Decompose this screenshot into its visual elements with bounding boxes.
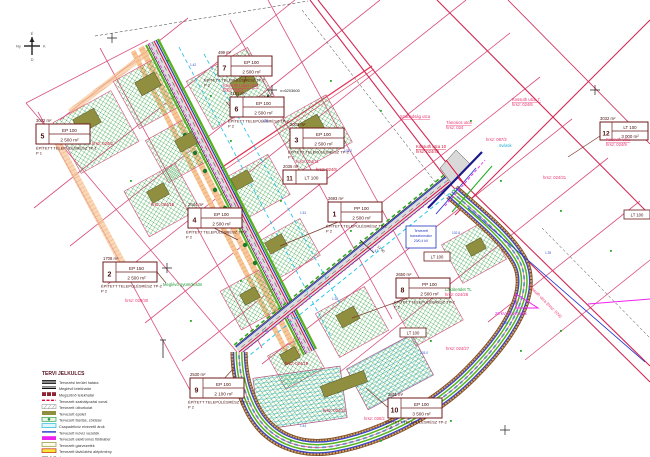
svg-text:EP 100: EP 100 <box>244 60 259 65</box>
ditch-label: övárok <box>499 143 512 148</box>
svg-text:103.0: 103.0 <box>420 351 428 355</box>
pavement-swatch-icon <box>42 405 56 409</box>
zone-box-2: 1708 m² 2 EP 150 2 500 m² ÉPÍTETT TELEPÜ… <box>101 256 163 294</box>
legend-item-pavement: Tervezett útburkolat <box>42 405 93 410</box>
svg-text:1.35: 1.35 <box>332 297 338 301</box>
hrsz-label: hrsz: 024/19 <box>285 361 309 366</box>
hrsz-label: hrsz: 024/31 <box>543 175 567 180</box>
svg-text:1708 m²: 1708 m² <box>103 256 119 261</box>
hrsz-label: hrsz: 024/15 <box>151 202 175 207</box>
svg-text:Tervezett szabályozási vonal: Tervezett szabályozási vonal <box>59 400 107 404</box>
svg-text:Tervezett: Tervezett <box>414 229 428 233</box>
svg-text:Ny: Ny <box>16 44 21 49</box>
svg-text:2036 m²: 2036 m² <box>283 164 299 169</box>
hrsz-label: hrsz: 024/45 <box>416 149 440 154</box>
svg-text:2 500 m²: 2 500 m² <box>242 70 261 75</box>
telecom-swatch-icon <box>42 449 56 453</box>
zone-box-5: 3032 m² 5 EP 100 2 500 m² ÉPÍTETT TELEPÜ… <box>36 118 98 156</box>
svg-text:1.56: 1.56 <box>502 321 508 325</box>
hrsz-label: hrsz: 029/30 <box>125 298 149 303</box>
svg-text:8: 8 <box>401 288 405 295</box>
zone-box-4: 2044 m² 4 EP 100 2 500 m² ÉPÍTETT TELEPÜ… <box>186 202 248 240</box>
legend-item-storm-ditch: Csapadékvíz elvezető árok <box>42 424 105 429</box>
hrsz-label: hrsz: 024/6 <box>512 102 533 107</box>
hrsz-label: hrsz: 087/2 <box>486 137 507 142</box>
svg-text:D: D <box>31 57 34 62</box>
legend-item-electric-cable: Tervezett elektromos földkábel <box>42 436 110 441</box>
svg-text:EP 100: EP 100 <box>414 402 429 407</box>
svg-text:P 2: P 2 <box>288 155 295 160</box>
svg-text:Meglévő telekhatár: Meglévő telekhatár <box>59 387 92 391</box>
utility-label: 20 kV légvezeték <box>495 311 528 316</box>
svg-text:EP 100: EP 100 <box>256 101 271 106</box>
zone-box-6: 4191 m² 6 EP 100 2 500 m² ÉPÍTETT TELEPÜ… <box>228 91 290 129</box>
zone-box-9: 2530 m² 9 EP 100 2 100 m² ÉPÍTETT TELEPÜ… <box>188 372 250 410</box>
svg-text:7: 7 <box>223 66 227 73</box>
ditch-swatch-icon <box>42 424 56 428</box>
svg-text:P 2: P 2 <box>188 405 195 410</box>
electric-swatch-icon <box>42 436 56 440</box>
legend-title: TERVI JELKULCS <box>42 371 85 377</box>
svg-text:102.8: 102.8 <box>452 231 460 235</box>
svg-text:9: 9 <box>195 388 199 395</box>
north-compass: É K D Ny <box>16 31 46 62</box>
gas-swatch-icon <box>42 443 56 447</box>
svg-text:2 500 m²: 2 500 m² <box>420 292 439 297</box>
svg-text:ÉPÍTETT TELEPÜLÉSRÉSZ TP-2: ÉPÍTETT TELEPÜLÉSRÉSZ TP-2 <box>394 300 456 305</box>
hrsz-label: hrsz: 024/8 <box>316 167 337 172</box>
svg-text:LT 100: LT 100 <box>305 176 319 181</box>
svg-text:Tervezési terület határa: Tervezési terület határa <box>59 381 99 385</box>
hrsz-label: hrsz: 024/28 <box>445 292 469 297</box>
parcel-swatch-icon <box>42 387 56 389</box>
building-swatch-icon <box>42 411 56 415</box>
svg-text:Tervezett épület: Tervezett épület <box>59 412 87 416</box>
transformer-box: Tervezett transzformátor 20/0,4 kV <box>406 226 436 248</box>
coordinate-label: x=6203600 <box>280 88 301 93</box>
svg-text:1.38: 1.38 <box>262 119 268 123</box>
svg-text:2 100 m²: 2 100 m² <box>214 392 233 397</box>
svg-text:1.42: 1.42 <box>190 63 196 67</box>
svg-text:20/0,4 kV: 20/0,4 kV <box>414 239 429 243</box>
hrsz-label: hrsz: 024/21 <box>323 408 347 413</box>
hrsz-label: hrsz: 024/11 <box>296 159 319 164</box>
removed-swatch-icon <box>42 392 56 396</box>
svg-text:P 1: P 1 <box>36 151 43 156</box>
svg-text:LT 100: LT 100 <box>431 255 444 260</box>
hrsz-label: hrsz: 030/2 <box>364 416 385 421</box>
svg-text:2 500 m²: 2 500 m² <box>127 276 146 281</box>
svg-text:ÉPÍTETT TELEPÜLÉSRÉSZ TP-1: ÉPÍTETT TELEPÜLÉSRÉSZ TP-1 <box>36 146 98 151</box>
mini-zone-box-3: LT 100 <box>624 210 650 219</box>
svg-text:Tervezett ivóvíz vezeték: Tervezett ivóvíz vezeték <box>59 431 99 435</box>
svg-text:2 500 m²: 2 500 m² <box>60 138 79 143</box>
svg-text:EP 100: EP 100 <box>214 212 229 217</box>
mini-zone-box-2: LT 100 <box>400 328 426 337</box>
svg-text:P 2: P 2 <box>394 305 401 310</box>
svg-text:2 500 m²: 2 500 m² <box>254 111 273 116</box>
svg-text:2 500 m²: 2 500 m² <box>352 216 371 221</box>
svg-text:ÉPÍTETT TELEPÜLÉSRÉSZ TP-2: ÉPÍTETT TELEPÜLÉSRÉSZ TP-2 <box>204 78 266 83</box>
street-label: Kossuth utca (hrsz: 024) <box>527 283 563 319</box>
boundary-swatch-icon <box>42 380 56 383</box>
svg-text:Megszűnő telekhatár: Megszűnő telekhatár <box>59 394 95 398</box>
svg-text:1.51: 1.51 <box>300 211 306 215</box>
svg-text:LT 100: LT 100 <box>407 331 420 336</box>
svg-text:transzformátor: transzformátor <box>410 234 433 238</box>
mini-zone-box-1: LT 100 <box>424 252 450 261</box>
zone-box-10: 2811 m² 10 EP 100 3 500 m² ÉPÍTETT TELEP… <box>386 392 448 430</box>
svg-text:ÉPÍTETT TELEPÜLÉSRÉSZ TP-2: ÉPÍTETT TELEPÜLÉSRÉSZ TP-2 <box>288 150 350 155</box>
svg-text:Tervezett elektromos földkábel: Tervezett elektromos földkábel <box>59 438 110 442</box>
svg-text:ÉPÍTETT TELEPÜLÉSRÉSZ TP-2: ÉPÍTETT TELEPÜLÉSRÉSZ TP-2 <box>326 224 388 229</box>
svg-text:1.44: 1.44 <box>300 424 306 428</box>
svg-text:1.60: 1.60 <box>262 329 268 333</box>
svg-text:PP 100: PP 100 <box>422 282 437 287</box>
svg-text:ÉPÍTETT TELEPÜLÉSRÉSZ TP-2: ÉPÍTETT TELEPÜLÉSRÉSZ TP-2 <box>386 420 448 425</box>
north-arrow-icon <box>30 37 35 42</box>
svg-text:2044 m²: 2044 m² <box>188 202 204 207</box>
hrsz-label: hrsz: 024/3 <box>92 141 113 146</box>
svg-text:1.39: 1.39 <box>545 251 551 255</box>
svg-text:3032 m²: 3032 m² <box>36 118 52 123</box>
svg-text:11: 11 <box>286 177 293 183</box>
svg-text:2530 m²: 2530 m² <box>190 372 206 377</box>
svg-text:ÉPÍTETT TELEPÜLÉSRÉSZ TP-2: ÉPÍTETT TELEPÜLÉSRÉSZ TP-2 <box>228 119 290 124</box>
legend-item-telecom: Tervezett távközlési alépítmény <box>42 449 112 454</box>
svg-text:PP 100: PP 100 <box>354 206 369 211</box>
svg-text:P 2: P 2 <box>326 229 333 234</box>
hrsz-label: hrsz: 024/1 <box>223 88 244 93</box>
svg-text:2693 m²: 2693 m² <box>328 196 344 201</box>
svg-text:Tervezett gázvezeték: Tervezett gázvezeték <box>59 444 95 448</box>
svg-text:P 2: P 2 <box>101 289 108 294</box>
legend-item-existing-parcel: Meglévő telekhatár <box>42 387 92 391</box>
svg-text:Csapadékvíz elvezető árok: Csapadékvíz elvezető árok <box>59 425 105 429</box>
svg-text:2 500 m²: 2 500 m² <box>212 222 231 227</box>
zone-box-1: 2693 m² 1 PP 100 2 500 m² ÉPÍTETT TELEPÜ… <box>326 196 388 234</box>
svg-text:ÉPÍTETT TELEPÜLÉSRÉSZ TP-2: ÉPÍTETT TELEPÜLÉSRÉSZ TP-2 <box>101 284 163 289</box>
svg-text:2003 m²: 2003 m² <box>290 122 306 127</box>
svg-text:LT 100: LT 100 <box>631 213 644 218</box>
svg-text:2811 m²: 2811 m² <box>388 392 404 397</box>
svg-text:1.47: 1.47 <box>372 249 378 253</box>
site-plan-page: x=6203600 16 00 12 00 Tervezett transzfo… <box>0 0 650 457</box>
svg-text:3 500 m²: 3 500 m² <box>412 412 431 417</box>
section-marker <box>160 340 166 358</box>
legend: TERVI JELKULCS Tervezési terület határa … <box>42 371 112 457</box>
svg-text:P 2: P 2 <box>386 425 393 430</box>
street-label: Szabadság utca <box>400 114 431 119</box>
svg-text:K: K <box>43 44 46 49</box>
svg-text:LT 100: LT 100 <box>623 125 637 130</box>
legend-item-planning-boundary: Tervezési terület határa <box>42 380 99 385</box>
svg-text:Tervezett fásítás, zöldsáv: Tervezett fásítás, zöldsáv <box>59 419 102 423</box>
svg-text:P 2: P 2 <box>186 235 193 240</box>
svg-text:3032 m²: 3032 m² <box>600 116 616 121</box>
svg-text:6: 6 <box>235 107 239 114</box>
svg-text:EP 100: EP 100 <box>216 382 231 387</box>
svg-text:ÉPÍTETT TELEPÜLÉSRÉSZ TP-2: ÉPÍTETT TELEPÜLÉSRÉSZ TP-2 <box>188 400 250 405</box>
hrsz-label: hrsz: 024/27 <box>446 346 470 351</box>
svg-text:10: 10 <box>391 408 399 415</box>
svg-text:P 2: P 2 <box>228 124 235 129</box>
legend-item-gas-pipe: Tervezett gázvezeték <box>42 443 95 448</box>
svg-text:2 500 m²: 2 500 m² <box>314 142 333 147</box>
legend-item-water-pipe: Tervezett ivóvíz vezeték <box>42 431 99 435</box>
svg-text:EP 150: EP 150 <box>129 266 144 271</box>
svg-text:Tervezett útburkolat: Tervezett útburkolat <box>59 406 93 410</box>
svg-text:P 2: P 2 <box>204 83 211 88</box>
svg-text:499 m²: 499 m² <box>218 50 232 55</box>
legend-item-planting: Tervezett fásítás, zöldsáv <box>42 417 102 422</box>
hrsz-label: hrsz: 024/9 <box>606 142 627 147</box>
svg-text:Tervezett távközlési alépítmén: Tervezett távközlési alépítmény <box>59 450 112 454</box>
svg-text:EP 100: EP 100 <box>316 132 331 137</box>
zone-box-3: 2003 m² 3 EP 100 2 500 m² ÉPÍTETT TELEPÜ… <box>288 122 350 160</box>
svg-text:5: 5 <box>41 134 45 141</box>
svg-text:2650 m²: 2650 m² <box>396 272 412 277</box>
svg-text:EP 100: EP 100 <box>62 128 77 133</box>
svg-text:ÉPÍTETT TELEPÜLÉSRÉSZ TP-2: ÉPÍTETT TELEPÜLÉSRÉSZ TP-2 <box>186 230 248 235</box>
note-label: Meglévő gyümölcsös <box>163 282 202 287</box>
svg-text:1: 1 <box>333 212 337 219</box>
svg-text:É: É <box>31 31 34 36</box>
legend-item-building: Tervezett épület <box>42 411 87 416</box>
hrsz-label: hrsz: 024 <box>446 125 464 130</box>
svg-text:103.2: 103.2 <box>344 149 352 153</box>
svg-text:4: 4 <box>193 218 197 225</box>
legend-item-removed-parcel: Megszűnő telekhatár <box>42 392 95 397</box>
svg-text:2: 2 <box>108 272 112 279</box>
site-plan-canvas: x=6203600 16 00 12 00 Tervezett transzfo… <box>0 0 650 457</box>
legend-item-regulation-line: Tervezett szabályozási vonal <box>42 400 107 404</box>
svg-text:3: 3 <box>295 138 299 145</box>
